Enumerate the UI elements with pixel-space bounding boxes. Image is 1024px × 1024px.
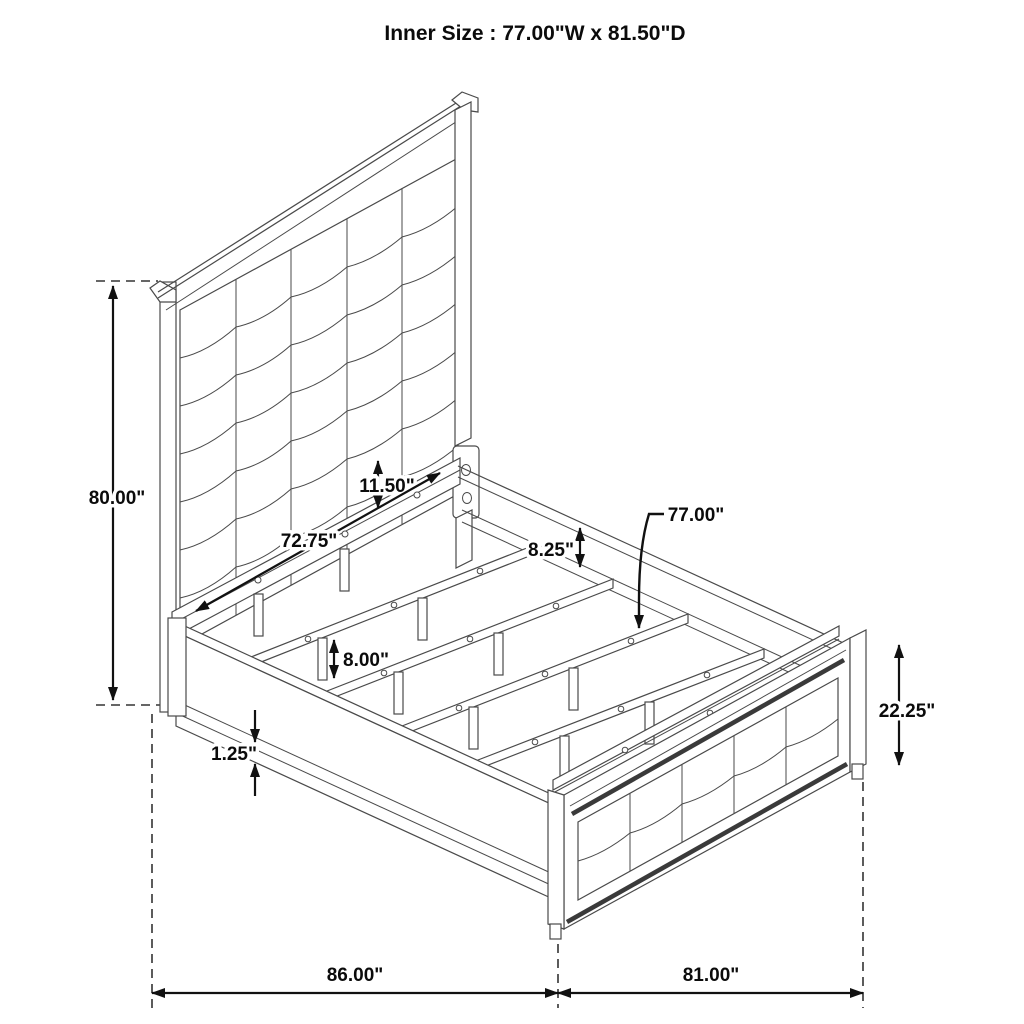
side-rail-far (458, 466, 850, 698)
dim-side-rail-length-label: 72.75" (281, 531, 338, 552)
dim-slat-length-leader (639, 514, 664, 628)
screw-hole (305, 636, 311, 642)
screw-hole (704, 672, 710, 678)
dim-floor-length-label: 86.00" (327, 965, 384, 986)
screw-hole (467, 636, 473, 642)
dim-footboard-height: 22.25" (879, 645, 936, 765)
screw-hole (628, 638, 634, 644)
dim-rail-lip-label: 1.25" (211, 744, 257, 765)
page-title: Inner Size : 77.00"W x 81.50"D (384, 22, 685, 45)
support-leg (394, 672, 403, 714)
support-leg (254, 594, 263, 636)
bracket-bolt-hole (463, 493, 472, 504)
footboard-right-foot (852, 764, 863, 779)
support-leg (340, 549, 349, 591)
headboard-right-post (455, 102, 471, 446)
support-leg (469, 707, 478, 749)
dim-side-rail-height-label: 8.25" (528, 540, 574, 561)
dim-panel-gap-label: 11.50" (359, 476, 415, 497)
dim-footboard-height-label: 22.25" (879, 701, 936, 722)
screw-hole (532, 739, 538, 745)
near-rail-corner-block (168, 618, 186, 716)
dim-overall-height: 80.00" (89, 286, 146, 700)
screw-hole (414, 492, 420, 498)
dim-slat-length-label: 77.00" (668, 505, 725, 526)
dim-floor-length: 86.00" (152, 965, 558, 993)
screw-hole (618, 706, 624, 712)
support-leg (569, 668, 578, 710)
support-leg (418, 598, 427, 640)
screw-hole (553, 603, 559, 609)
screw-hole (391, 602, 397, 608)
screw-hole (542, 671, 548, 677)
dim-overall-height-label: 80.00" (89, 488, 146, 509)
dim-floor-width: 81.00" (558, 965, 863, 993)
screw-hole (456, 705, 462, 711)
bed-dimension-diagram-page: 80.00" 11.50" 72.75" 8.25" 77.00" 8.00" … (0, 0, 1024, 1024)
dim-leg-height-label: 8.00" (343, 650, 389, 671)
support-leg (494, 633, 503, 675)
screw-hole (477, 568, 483, 574)
headboard-panel (180, 158, 458, 646)
support-leg (318, 638, 327, 680)
footboard-right-cap (850, 630, 866, 772)
screw-hole (381, 670, 387, 676)
headboard-right-leg (456, 510, 472, 568)
footboard-left-cap (548, 790, 564, 929)
screw-hole (342, 531, 348, 537)
footboard-left-foot (550, 924, 561, 939)
bed-dimension-diagram: 80.00" 11.50" 72.75" 8.25" 77.00" 8.00" … (0, 0, 1024, 1024)
screw-hole (622, 747, 628, 753)
dim-floor-width-label: 81.00" (683, 965, 740, 986)
